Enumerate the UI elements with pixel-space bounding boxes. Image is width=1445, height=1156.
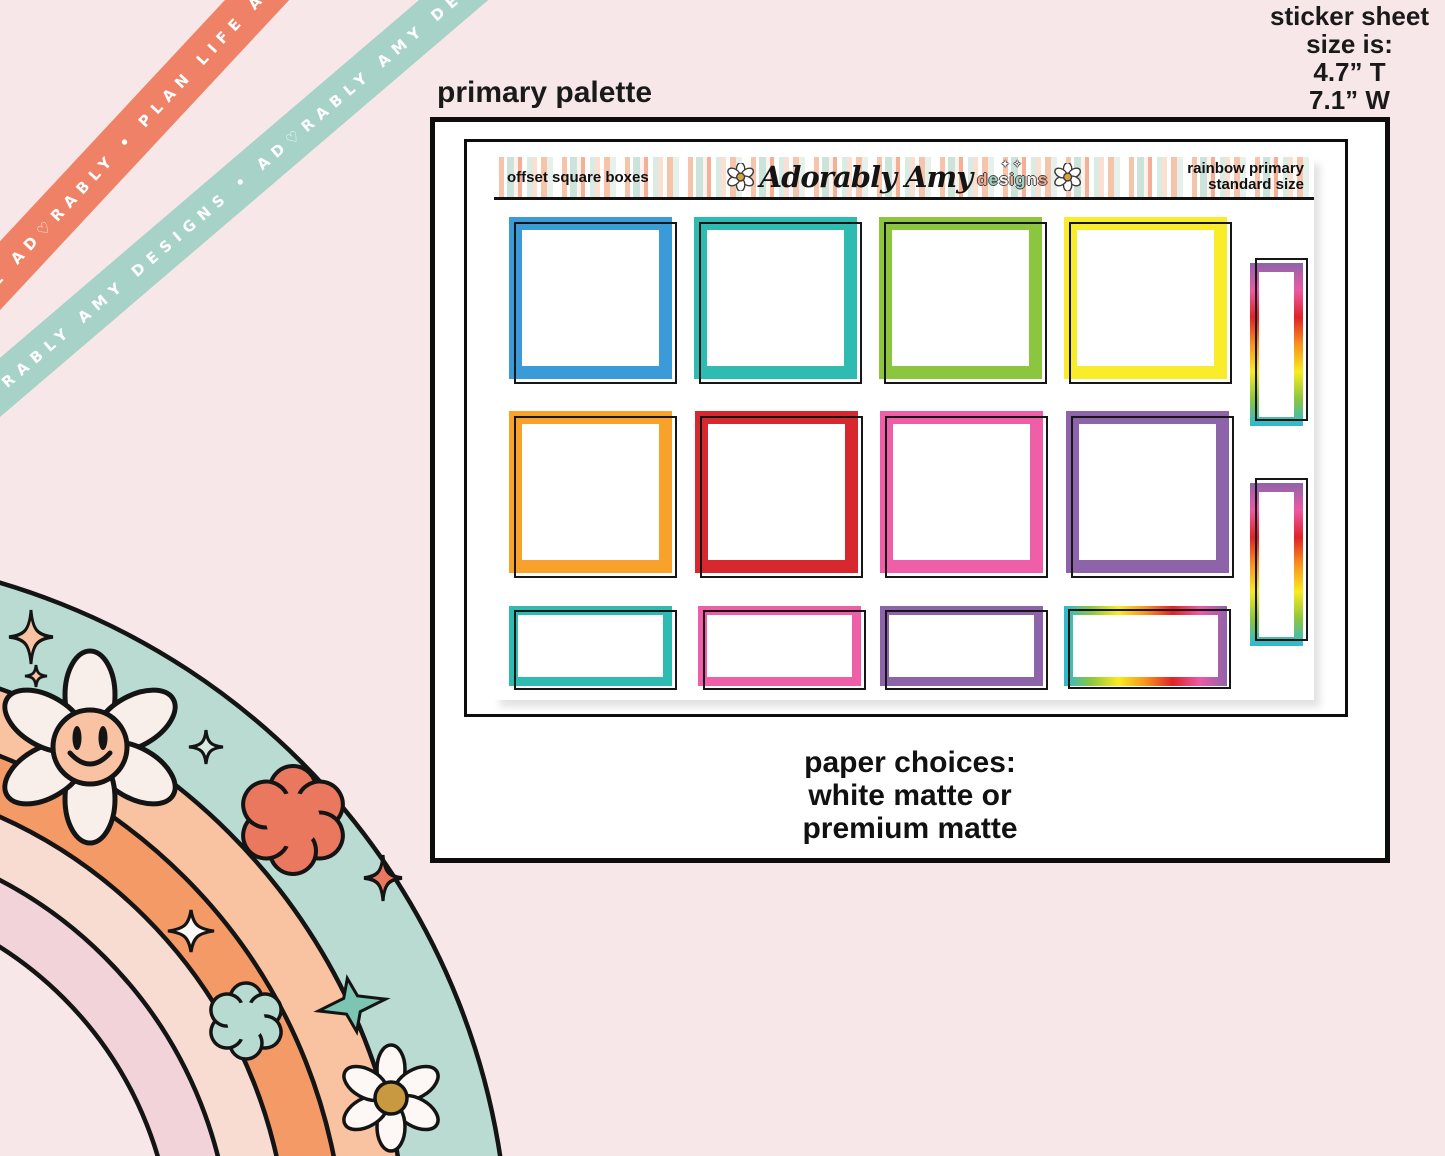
- sticker-box-blue-square: [509, 217, 672, 379]
- paper-note-line: premium matte: [430, 812, 1390, 845]
- sticker-box-pink-half: [698, 606, 861, 686]
- cut-line: [700, 416, 863, 578]
- cut-line: [884, 222, 1047, 384]
- cut-line: [514, 416, 677, 578]
- sticker-box-rainbow-vertical-1: [1250, 263, 1303, 426]
- sticker-boxes-grid: [494, 157, 1314, 700]
- cut-line: [885, 610, 1048, 690]
- sticker-box-red-square: [695, 411, 858, 573]
- paper-note-line: paper choices:: [430, 746, 1390, 779]
- cut-line: [1068, 609, 1231, 689]
- sticker-box-orange-square: [509, 411, 672, 573]
- cut-line: [885, 416, 1048, 578]
- cut-line: [699, 222, 862, 384]
- sticker-sheet-size-note: sticker sheet size is: 4.7” T 7.1” W: [1262, 2, 1437, 114]
- size-note-line: 7.1” W: [1262, 86, 1437, 114]
- size-note-line: size is:: [1262, 30, 1437, 58]
- rainbow-corner-art: [0, 556, 540, 1156]
- size-note-line: 4.7” T: [1262, 58, 1437, 86]
- cut-line: [1255, 258, 1308, 421]
- cut-line: [1071, 416, 1234, 578]
- sticker-box-rainbow-vertical-2: [1250, 483, 1303, 646]
- sticker-box-purple-half: [880, 606, 1043, 686]
- paper-note-line: white matte or: [430, 779, 1390, 812]
- sticker-sheet: offset square boxes Adorably Amy ✦ ✧desi…: [494, 157, 1314, 700]
- cut-line: [514, 222, 677, 384]
- size-note-line: sticker sheet: [1262, 2, 1437, 30]
- paper-choices-note: paper choices: white matte or premium ma…: [430, 746, 1390, 845]
- sticker-box-rainbow-half: [1064, 606, 1227, 686]
- product-image: PLAN LIFE AD♡RABLY • PLAN LIFE AD♡RABLY …: [0, 0, 1445, 1156]
- sticker-box-purple-square: [1066, 411, 1229, 573]
- cut-line: [703, 610, 866, 690]
- cut-line: [1255, 478, 1308, 641]
- sticker-box-teal-square: [694, 217, 857, 379]
- palette-label: primary palette: [437, 76, 652, 110]
- sticker-box-pink-square: [880, 411, 1043, 573]
- cut-line: [1069, 222, 1232, 384]
- sticker-box-green-square: [879, 217, 1042, 379]
- sticker-box-yellow-square: [1064, 217, 1227, 379]
